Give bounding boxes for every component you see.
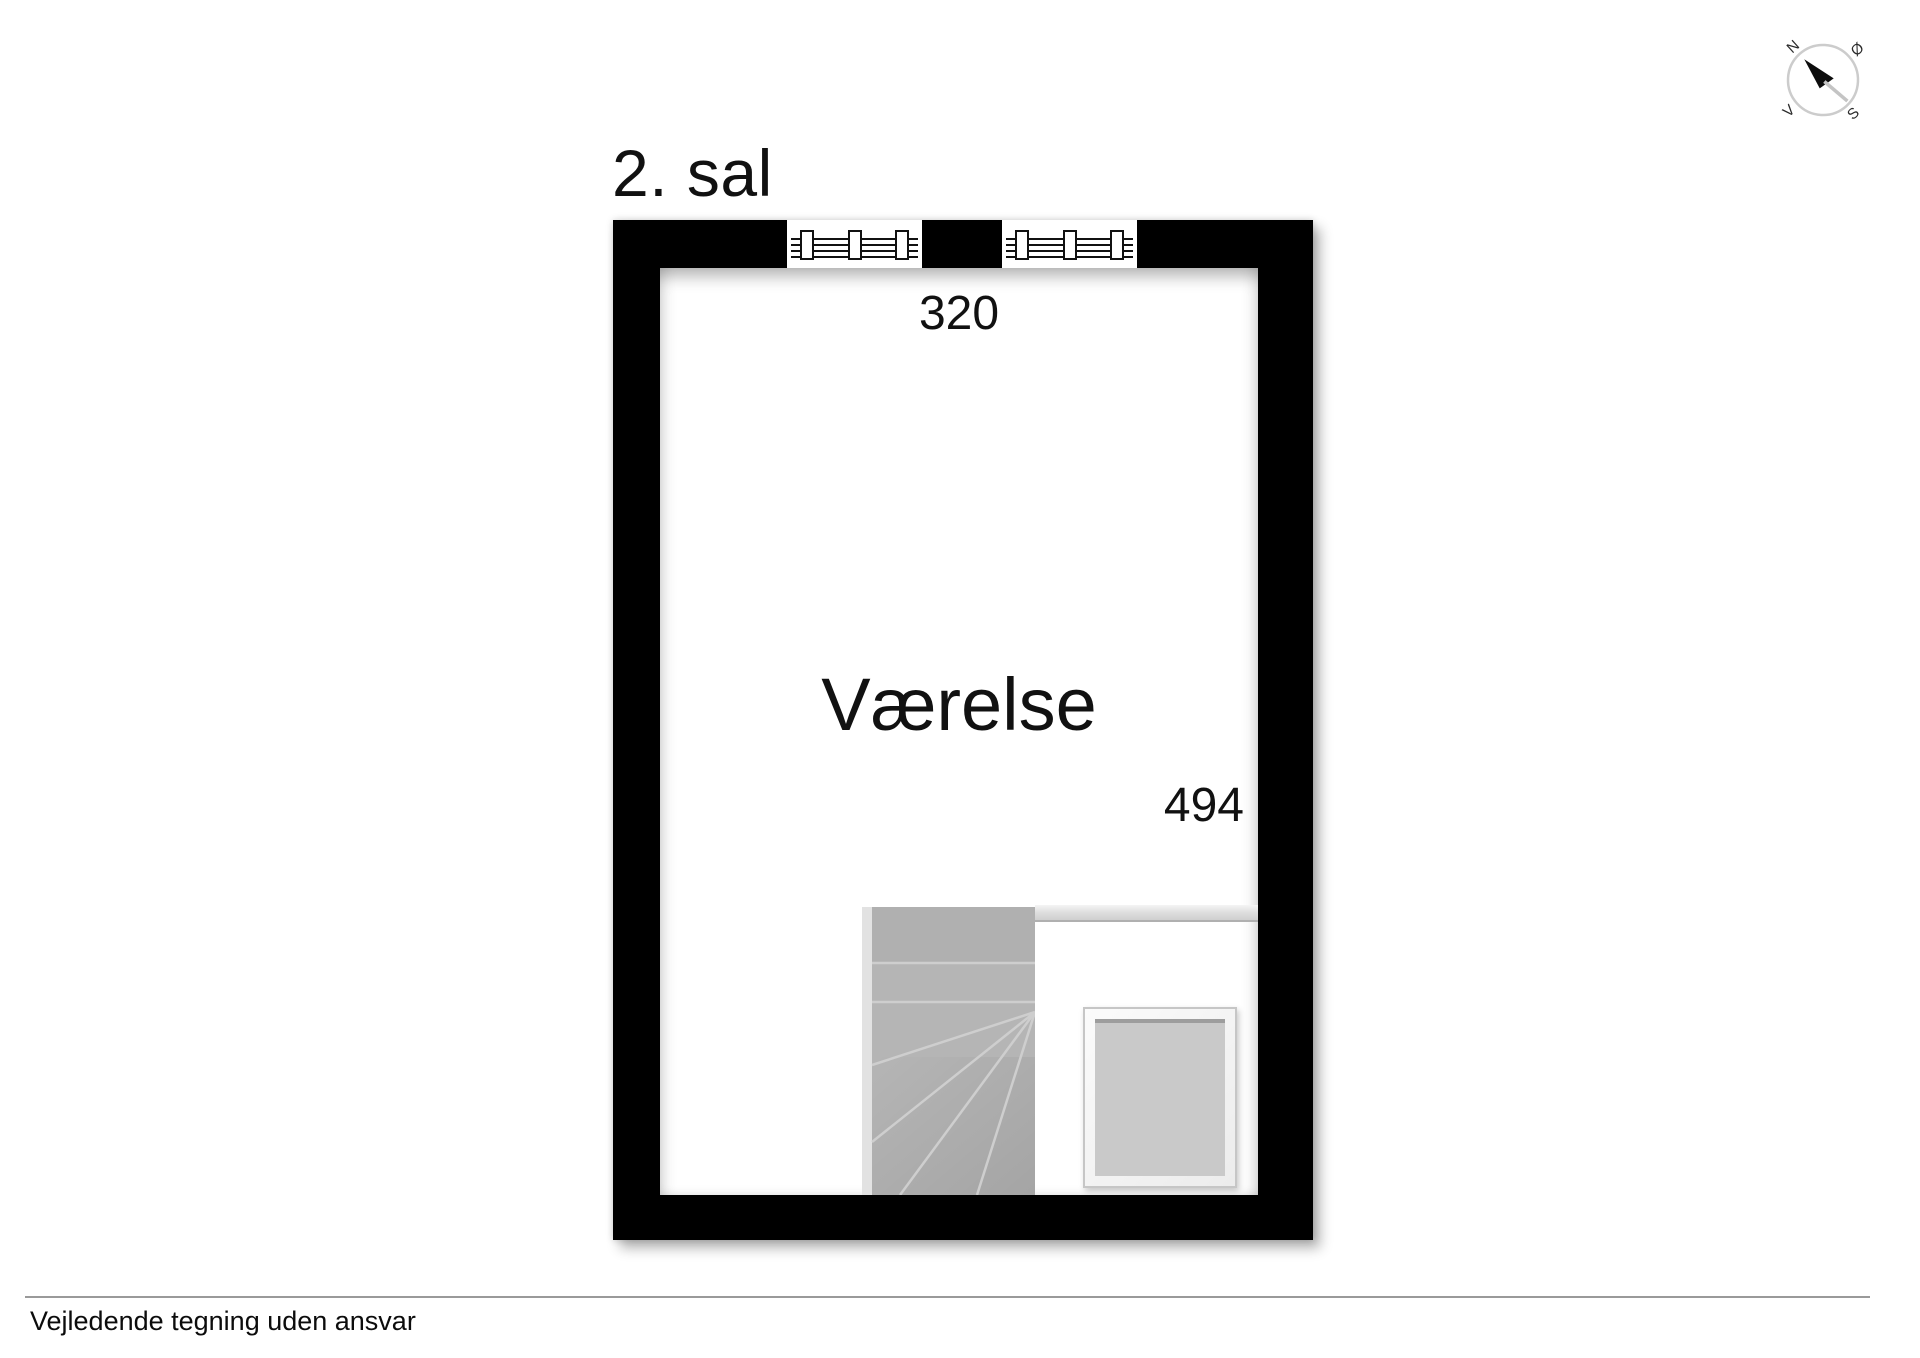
skylight-object [1083, 1007, 1237, 1188]
skylight-object-fill [1095, 1019, 1225, 1176]
footer-divider [25, 1296, 1870, 1298]
compass-label-south: S [1844, 104, 1863, 123]
floor-plan-page: N Ø S V 2. sal 320 Værelse 494 [0, 0, 1920, 1358]
stairwell-railing [1035, 905, 1258, 922]
staircase-icon [862, 907, 1035, 1195]
window-frame-post [895, 230, 909, 260]
window-frame-post [800, 230, 814, 260]
compass-icon: N Ø S V [1771, 28, 1875, 132]
window-frame-post [1063, 230, 1077, 260]
floor-plan: 320 Værelse 494 [613, 220, 1313, 1240]
window-icon [1002, 220, 1137, 268]
compass-label-west: V [1780, 101, 1799, 120]
floor-title: 2. sal [612, 140, 773, 206]
window-frame-post [1110, 230, 1124, 260]
room-interior: 320 Værelse 494 [660, 268, 1258, 1195]
room-label: Værelse [660, 668, 1258, 742]
dimension-label-depth: 494 [1164, 782, 1244, 830]
compass-needle-south [1824, 79, 1847, 104]
window-frame-post [848, 230, 862, 260]
dimension-label-width: 320 [660, 290, 1258, 338]
window-icon [787, 220, 922, 268]
window-frame-post [1015, 230, 1029, 260]
footer-disclaimer: Vejledende tegning uden ansvar [30, 1305, 416, 1337]
